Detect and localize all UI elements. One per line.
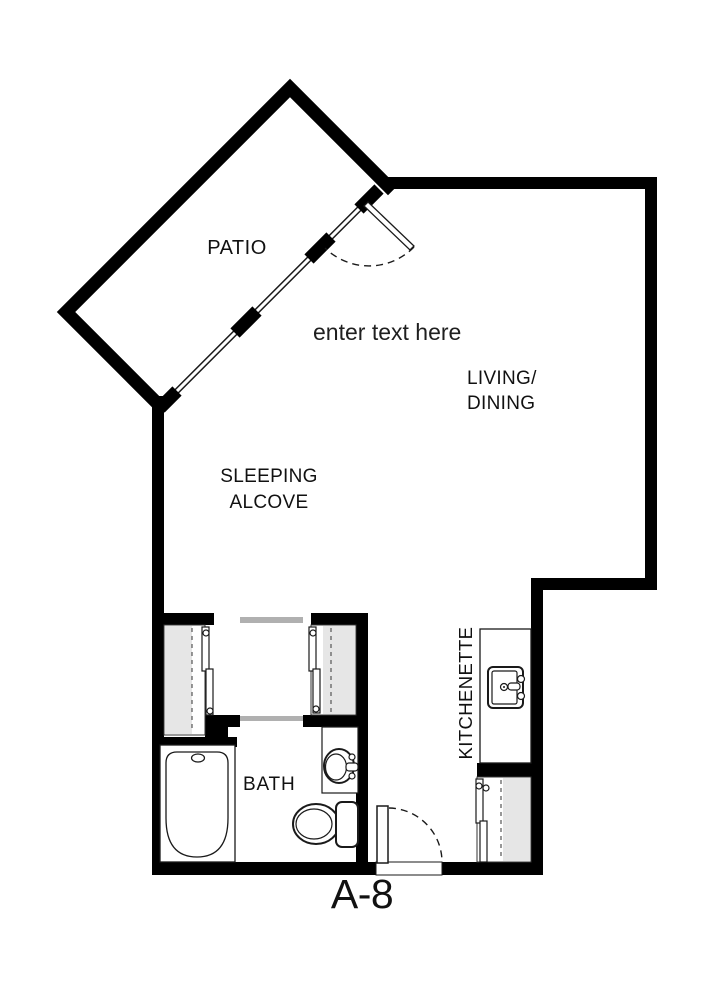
kitchen-faucet-knob-top [518,676,525,683]
closet-3-pull-b [483,785,489,791]
sleeping-alcove-label: SLEEPING ALCOVE [205,464,333,516]
alcove-opening-header [240,617,303,623]
closet-1-pull-bottom [207,708,213,714]
kitchenette-label: KITCHENETTE [455,613,477,773]
kitchenette-counter [480,629,531,763]
kitchen-faucet-dot [503,686,505,688]
closet-2-pull-bottom [313,706,319,712]
closet-3-pull-a [476,783,482,789]
opening-headers [240,617,303,721]
kitchenette-stub-wall [477,763,543,777]
bath-faucet-spout [346,763,358,771]
floor-plan: PATIO enter text here LIVING/ DINING SLE… [0,0,717,998]
toilet-tank [336,802,358,847]
patio-window-wall [160,189,379,408]
patio-door-swing-arc [325,247,414,266]
right-wall-upper [645,177,657,590]
editable-text-placeholder[interactable]: enter text here [313,319,461,346]
unit-label: A-8 [302,871,422,918]
closet-2-pull-top [310,630,316,636]
kitchen-faucet-spout [508,683,520,690]
floor-plan-drawing [0,0,717,998]
bath-door-header [240,716,303,721]
entry-door [376,806,442,875]
glass-line-outer [170,201,371,402]
step-wall [531,578,657,590]
bathtub [160,745,235,862]
closet1-top-wall [152,613,214,625]
patio-door-leaf [364,202,414,250]
window-stub-bottom [160,391,177,408]
closet-2-shade [323,626,355,714]
window-mullion-1 [309,237,331,259]
bath-label: BATH [243,774,295,796]
living-dining-line2: DINING [467,391,537,416]
right-wall-lower [531,578,543,875]
toilet [293,802,358,847]
bath-faucet-knob-top [349,754,355,760]
closet-1-pull-top [203,630,209,636]
top-wall [383,177,657,189]
bottom-wall-right [442,862,543,875]
entry-door-swing-arc [389,808,442,862]
patio-door [325,202,414,266]
closet-3-door-panel-b [480,821,487,862]
bath-wall-pier [205,725,228,737]
closet-3 [476,777,531,862]
kitchen-faucet-knob-bottom [518,693,525,700]
tub-drain [192,754,205,762]
glass-line-inner [166,197,367,398]
closet-1-shade [165,626,192,734]
bath-top-wall-right [303,715,356,727]
bath-vanity [322,727,358,793]
living-dining-line1: LIVING/ [467,366,537,391]
entry-door-leaf [377,806,388,863]
window-mullion-2 [235,311,257,333]
sleeping-alcove-line2: ALCOVE [205,490,333,516]
closet-3-shade [503,778,530,861]
closet-2 [309,625,356,715]
sleeping-alcove-line1: SLEEPING [205,464,333,490]
tub-basin [166,752,228,857]
bath-faucet-knob-bottom [349,773,355,779]
patio-label: PATIO [202,237,272,260]
living-dining-label: LIVING/ DINING [467,366,537,416]
